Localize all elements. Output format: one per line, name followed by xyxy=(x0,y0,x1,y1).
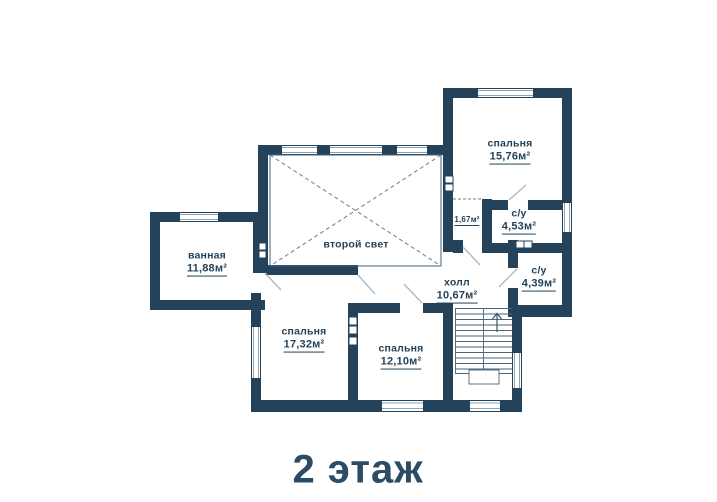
room-name: спальня xyxy=(281,326,326,339)
floor-title: 2 этаж xyxy=(292,448,423,493)
room-area: 10,67м² xyxy=(437,290,478,304)
bathroom-door-leaf xyxy=(265,273,281,290)
stairs-up-arrow-icon xyxy=(493,314,502,333)
room-name: спальня xyxy=(378,343,423,356)
room-label-second-light: второй свет xyxy=(323,238,388,251)
room-label-bathroom: ванная 11,88м² xyxy=(187,250,227,277)
room-label-hall: холл 10,67м² xyxy=(437,277,478,304)
room-label-corridor: 1,67м² xyxy=(454,215,479,225)
room-name: с/у xyxy=(522,265,556,278)
room-name: с/у xyxy=(502,208,536,221)
room-name: спальня xyxy=(487,138,532,151)
bedroom-mid-door-leaf xyxy=(404,284,422,303)
room-name: холл xyxy=(437,277,478,290)
room-area: 4,39м² xyxy=(522,278,556,292)
room-area: 17,32м² xyxy=(284,339,325,353)
room-name: ванная xyxy=(187,250,227,263)
bedroom-left-door-leaf xyxy=(358,275,375,294)
corridor-door-leaf xyxy=(463,247,480,265)
room-label-su-mid: с/у 4,39м² xyxy=(522,265,556,292)
room-area: 4,53м² xyxy=(502,221,536,235)
room-label-bedroom-left: спальня 17,32м² xyxy=(281,326,326,353)
room-area: 12,10м² xyxy=(381,356,422,370)
room-area: 1,67м² xyxy=(454,215,479,226)
stairs xyxy=(455,308,512,384)
room-label-bedroom-mid: спальня 12,10м² xyxy=(378,343,423,370)
room-label-su-top: с/у 4,53м² xyxy=(502,208,536,235)
su-top-door-leaf xyxy=(509,185,526,200)
room-name: второй свет xyxy=(323,238,388,251)
room-area: 11,88м² xyxy=(187,263,227,277)
room-area: 15,76м² xyxy=(490,151,531,165)
room-label-bedroom-top: спальня 15,76м² xyxy=(487,138,532,165)
floor-plan: спальня 15,76м² с/у 4,53м² 1,67м² с/у 4,… xyxy=(0,0,717,502)
